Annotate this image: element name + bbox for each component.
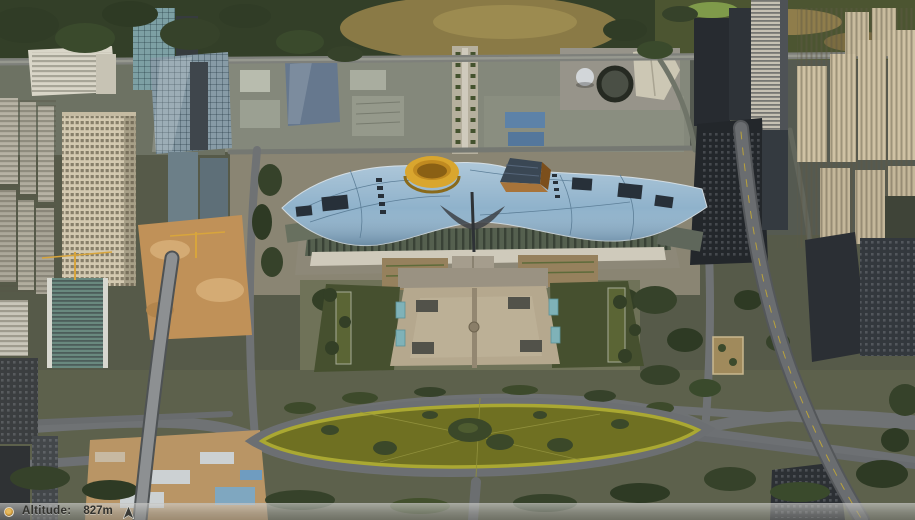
construction-site	[138, 215, 252, 340]
central-spine	[472, 192, 474, 252]
roof-cylinder	[405, 156, 459, 192]
walled-garden	[713, 337, 743, 374]
west-skyscraper-district	[0, 8, 268, 520]
altitude-value: 827m	[83, 506, 112, 518]
status-bar: Altitude: 827m	[0, 503, 915, 520]
dark-towers-far-east	[805, 232, 915, 362]
ring-roof-building	[599, 68, 631, 100]
civic-square-plaza	[314, 281, 644, 372]
beige-grid-tower	[62, 112, 136, 286]
streaming-indicator-icon	[4, 507, 14, 517]
blue-roof-hall	[505, 112, 545, 128]
altitude-label: Altitude:	[22, 506, 71, 518]
earth-3d-viewport[interactable]: Altitude: 827m	[0, 0, 915, 520]
aerial-scene	[0, 0, 915, 520]
residential-slabs	[0, 98, 56, 294]
north-up-arrow-icon	[123, 506, 134, 519]
